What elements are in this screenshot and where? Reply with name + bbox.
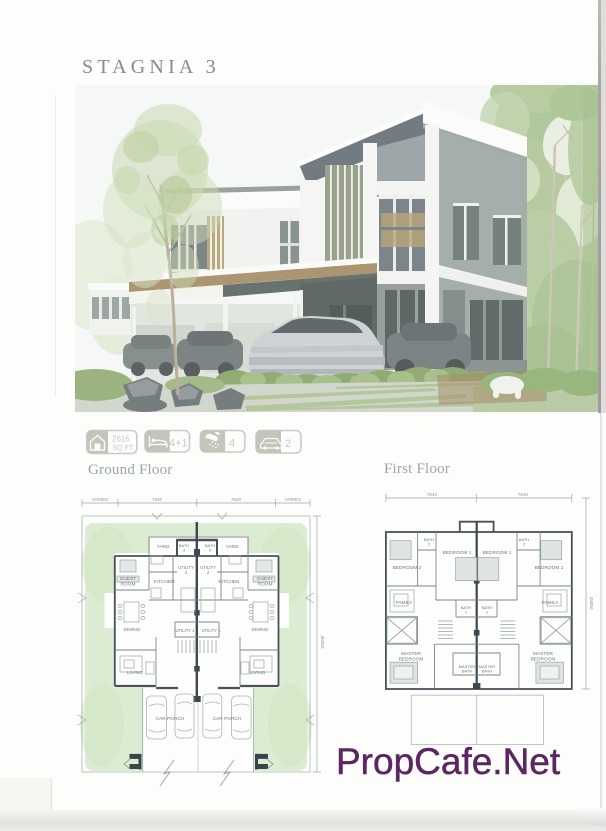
svg-text:FAMILY: FAMILY	[542, 600, 560, 606]
svg-text:KITCHEN: KITCHEN	[218, 579, 240, 585]
svg-text:1: 1	[486, 610, 489, 615]
svg-text:UTILITY 1: UTILITY 1	[201, 628, 221, 633]
svg-text:YARD: YARD	[157, 544, 171, 550]
svg-text:BEDROOM: BEDROOM	[531, 657, 556, 663]
svg-text:2: 2	[428, 542, 431, 547]
svg-text:BEDROOM 1: BEDROOM 1	[483, 550, 512, 556]
svg-text:GUEST: GUEST	[120, 576, 137, 582]
svg-text:4+1: 4+1	[169, 438, 188, 450]
svg-text:7640: 7640	[152, 497, 163, 502]
svg-text:SQ FT: SQ FT	[113, 445, 134, 452]
svg-text:BEDROOM 1: BEDROOM 1	[443, 550, 472, 556]
svg-text:7640: 7640	[231, 497, 242, 502]
svg-text:ROOM: ROOM	[121, 582, 136, 588]
svg-text:BEDROOM 2: BEDROOM 2	[535, 565, 564, 571]
svg-text:LIVING: LIVING	[250, 670, 266, 676]
svg-text:FAMILY: FAMILY	[396, 600, 414, 606]
svg-text:4: 4	[229, 438, 235, 450]
svg-text:BEDROOM: BEDROOM	[399, 657, 424, 663]
svg-text:MASTER: MASTER	[533, 651, 554, 657]
svg-text:BEDROOM 2: BEDROOM 2	[393, 565, 422, 571]
svg-text:DINING: DINING	[252, 627, 269, 633]
svg-text:UTILITY 1: UTILITY 1	[175, 628, 195, 633]
svg-text:BATH: BATH	[482, 669, 492, 674]
svg-text:2: 2	[285, 438, 291, 450]
svg-text:2: 2	[523, 542, 526, 547]
svg-text:15050: 15050	[589, 597, 594, 610]
svg-text:LIVING: LIVING	[127, 670, 143, 676]
svg-text:BATH: BATH	[462, 669, 472, 674]
svg-text:CAR PORCH: CAR PORCH	[156, 716, 185, 722]
svg-text:VARIES: VARIES	[285, 497, 302, 502]
svg-text:2615: 2615	[112, 435, 130, 444]
svg-text:KITCHEN: KITCHEN	[153, 579, 175, 585]
svg-text:MASTER: MASTER	[401, 651, 422, 657]
svg-text:CAR PORCH: CAR PORCH	[213, 716, 242, 722]
svg-text:VARIES: VARIES	[92, 497, 109, 502]
svg-text:GUEST: GUEST	[257, 576, 274, 582]
svg-text:DINING: DINING	[124, 627, 141, 633]
svg-text:30250: 30250	[320, 636, 325, 649]
svg-text:7640: 7640	[518, 492, 529, 497]
svg-text:ROOM: ROOM	[258, 582, 273, 588]
svg-text:1: 1	[465, 610, 468, 615]
svg-text:7640: 7640	[427, 492, 438, 497]
svg-text:YARD: YARD	[226, 544, 240, 550]
